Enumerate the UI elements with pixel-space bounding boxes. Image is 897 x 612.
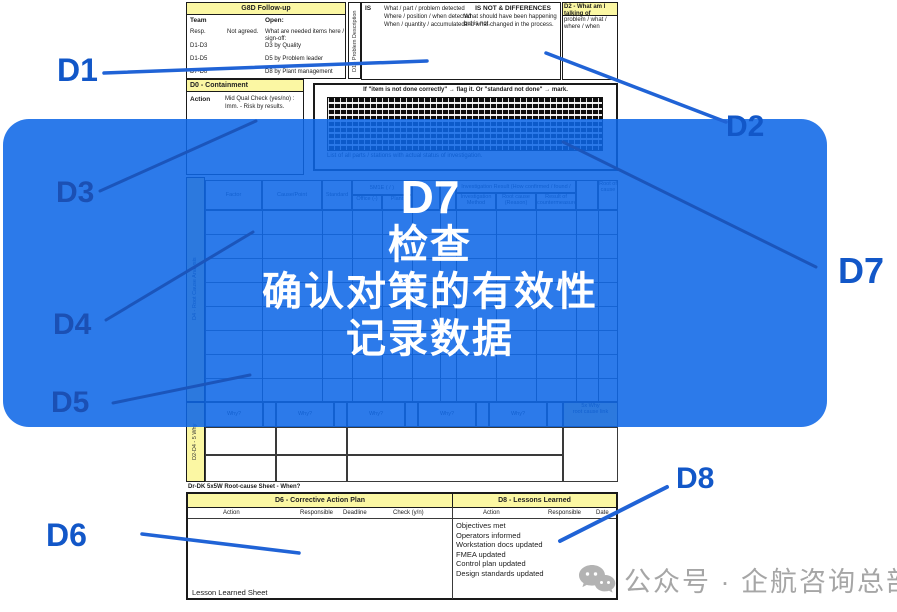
- d8-item: Design standards updated: [456, 569, 544, 579]
- g8d-cell: D8 by Plant management: [265, 69, 333, 76]
- d1-strip: D1 - Problem Description: [348, 2, 361, 79]
- d6-col-action: Action: [223, 510, 240, 517]
- d8-label: D8: [676, 462, 714, 496]
- d0-action-label: Action: [190, 96, 210, 103]
- note-line: Dr-DK 5x5W Root-cause Sheet - When?: [188, 484, 300, 491]
- is-isnot-block: IS What / part / problem detected Where …: [361, 2, 561, 80]
- d8-item: Operators informed: [456, 531, 544, 541]
- d7-label: D7: [838, 250, 884, 292]
- d6-col-responsible: Responsible: [300, 510, 333, 517]
- is-line: When / quantity / accumulated: [384, 22, 474, 29]
- isnot-title: IS NOT & DIFFERENCES: [467, 5, 559, 12]
- d2-box-line: problem / what / where / when: [563, 16, 617, 32]
- d1-label: D1: [57, 52, 98, 89]
- g8d-resp-label: Resp.: [190, 29, 206, 36]
- d6-section-title: D6 - Corrective Action Plan: [188, 494, 453, 508]
- d3-label: D3: [56, 176, 94, 210]
- d2-label: D2: [726, 110, 764, 144]
- is-line: What / part / problem detected: [384, 6, 474, 13]
- d1-strip-label: D1 - Problem Description: [352, 5, 358, 77]
- overlay-line-check: 检查: [0, 222, 860, 269]
- g8d-followup-block: G8D Follow-up Team Open: Resp. Not agree…: [186, 2, 346, 79]
- is-line: Where / position / when detected: [384, 14, 474, 21]
- overlay-d7-badge: D7: [0, 172, 860, 222]
- g8d-team-label: Team: [190, 17, 207, 24]
- d5-label: D5: [51, 386, 89, 420]
- g8d-cell: Not agreed.: [227, 29, 258, 36]
- g8d-cell: D3 by Quality: [265, 43, 301, 50]
- is-label: IS: [365, 5, 371, 12]
- g8d-open-label: Open:: [265, 17, 284, 24]
- isnot-line: and what changed in the process.: [464, 22, 559, 29]
- d8-checklist: Objectives met Operators informed Workst…: [456, 521, 544, 578]
- g8d-cell: D1-D5: [190, 56, 207, 63]
- d2-box: D2 - What am I talking of problem / what…: [562, 2, 618, 80]
- slide-canvas: G8D Follow-up Team Open: Resp. Not agree…: [0, 0, 897, 612]
- g8d-cell: What are needed items here / sign-off:: [265, 29, 345, 43]
- d6-col-deadline: Deadline: [343, 510, 367, 517]
- chat-bubbles-icon: [578, 563, 616, 597]
- d8-col-action: Action: [483, 510, 500, 517]
- g8d-cell: D1-D3: [190, 43, 207, 50]
- d0-action-text: Imm. - Risk by results.: [225, 104, 301, 111]
- g8d-cell: D5 by Problem leader: [265, 56, 323, 63]
- overlay-text-block: D7 检查 确认对策的有效性 记录数据: [0, 172, 860, 363]
- d0-action-text: Mid Qual Check (yes/no) :: [225, 96, 301, 103]
- d8-item: Objectives met: [456, 521, 544, 531]
- overlay-line-confirm: 确认对策的有效性: [0, 269, 860, 316]
- d8-col-date: Date: [596, 510, 609, 517]
- watermark: 公众号 · 企航咨询总部: [578, 560, 897, 599]
- d8-col-responsible: Responsible: [548, 510, 581, 517]
- watermark-text: 公众号 · 企航咨询总部: [624, 560, 897, 599]
- d8-item: FMEA updated: [456, 550, 544, 560]
- d6-col-check: Check (y/n): [393, 510, 424, 517]
- g8d-followup-title: G8D Follow-up: [187, 3, 345, 15]
- d8-item: Control plan updated: [456, 559, 544, 569]
- lesson-learned-footer: Lesson Learned Sheet: [192, 588, 267, 597]
- bottom-section: D6 - Corrective Action Plan D8 - Lessons…: [186, 492, 618, 600]
- d4-label: D4: [53, 308, 91, 342]
- d8-section-title: D8 - Lessons Learned: [453, 494, 616, 508]
- d6-label: D6: [46, 517, 87, 554]
- grid-caption: If "item is not done correctly" → flag i…: [315, 87, 616, 94]
- g8d-cell: D7-D8: [190, 69, 207, 76]
- d8-item: Workstation docs updated: [456, 540, 544, 550]
- d0-title: D0 - Containment: [187, 80, 303, 92]
- overlay-line-record: 记录数据: [0, 316, 860, 363]
